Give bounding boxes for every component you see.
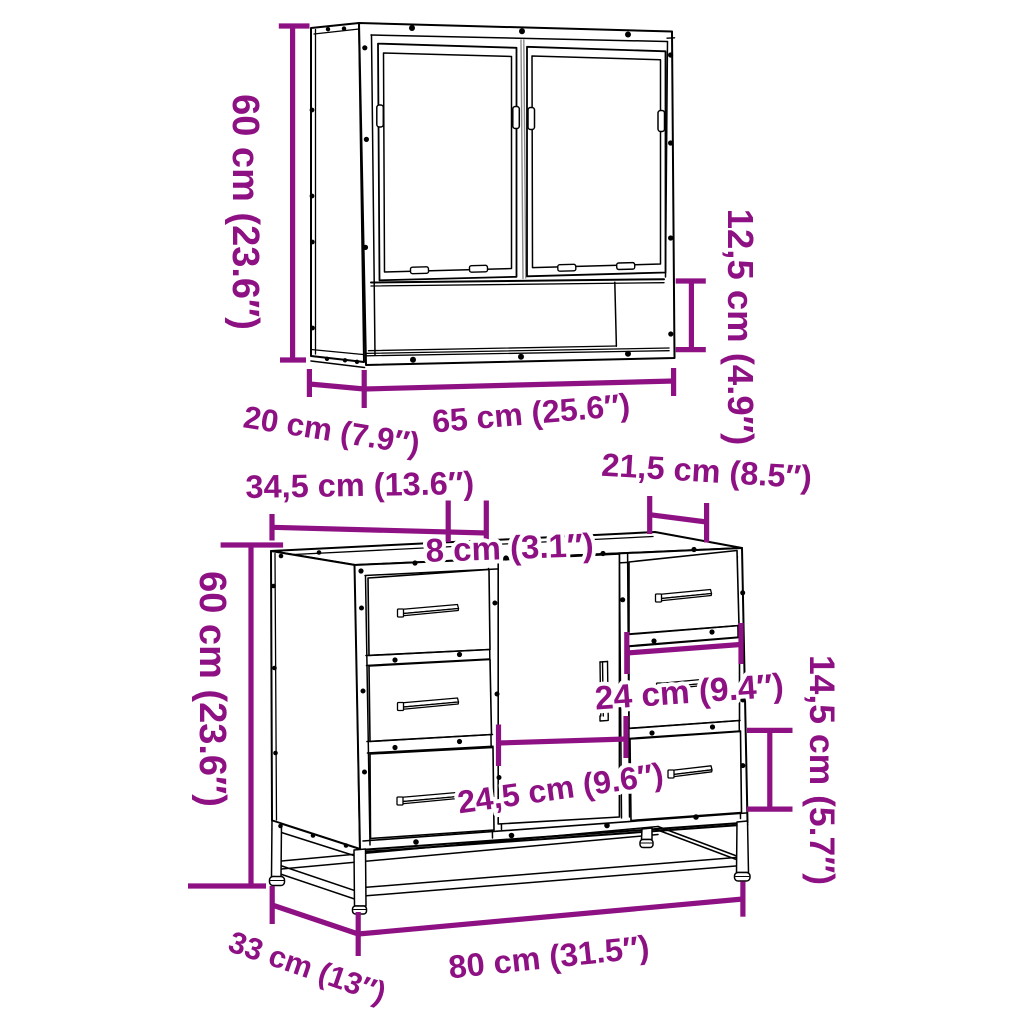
svg-text:60 cm (23.6″): 60 cm (23.6″) bbox=[224, 94, 266, 330]
svg-text:34,5 cm (13.6″): 34,5 cm (13.6″) bbox=[245, 465, 474, 505]
svg-text:12,5 cm (4.9″): 12,5 cm (4.9″) bbox=[720, 209, 761, 446]
svg-text:60 cm (23.6″): 60 cm (23.6″) bbox=[191, 571, 233, 807]
svg-text:14,5 cm (5.7″): 14,5 cm (5.7″) bbox=[802, 655, 842, 885]
svg-text:8 cm (3.1″): 8 cm (3.1″) bbox=[425, 526, 594, 569]
